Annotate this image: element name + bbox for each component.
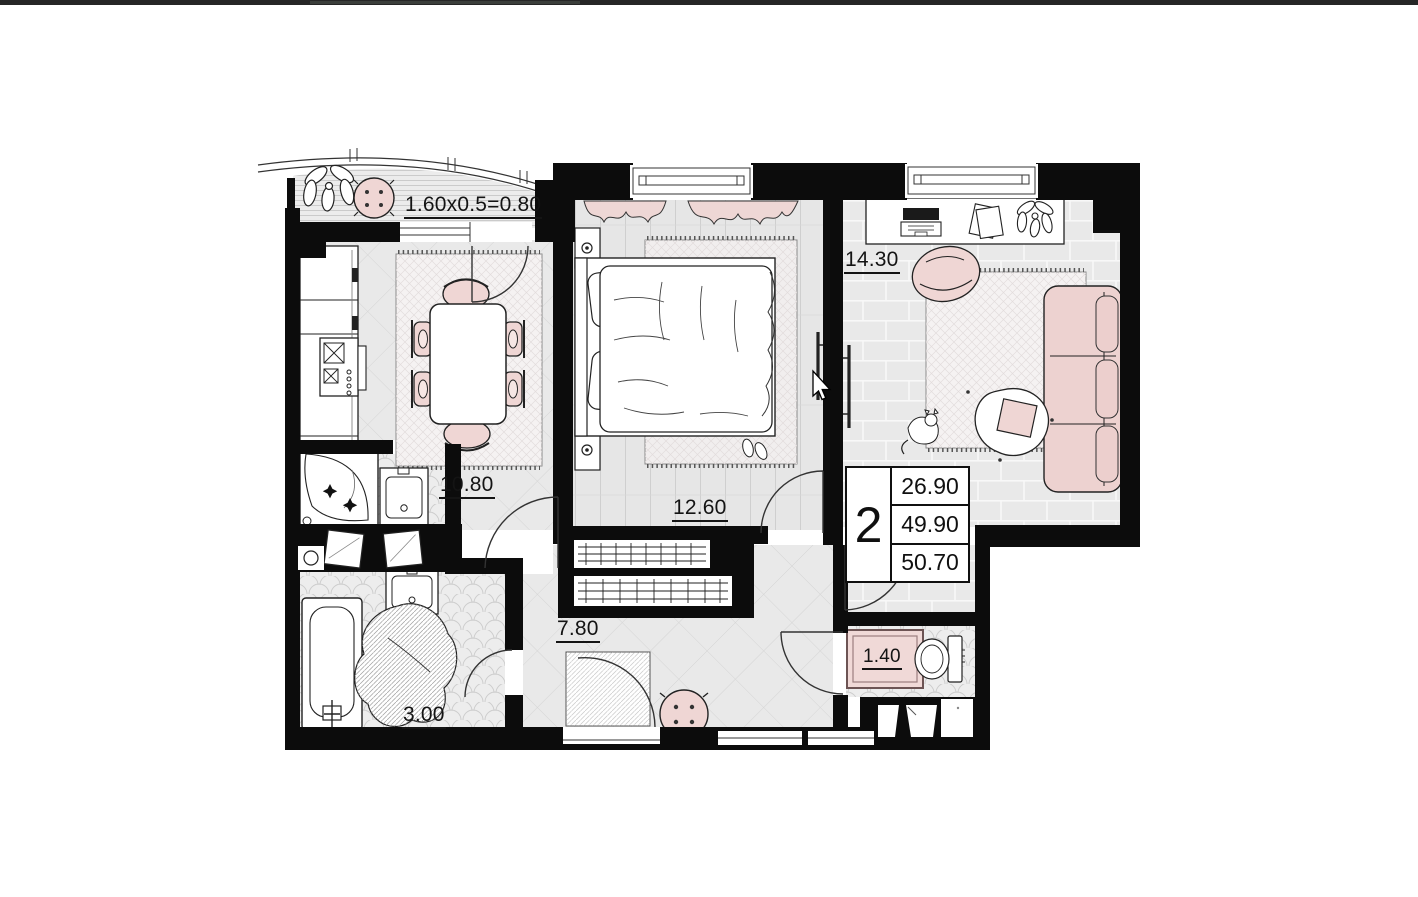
toilet-area-label: 1.40 <box>862 647 902 670</box>
apartment-area-value: 49.90 <box>892 506 968 544</box>
sofa <box>1044 286 1122 492</box>
floor-plan-page: 1.60x0.5=0.80 10.80 12.60 14.30 7.80 3.0… <box>0 0 1418 897</box>
apartment-info-table: 2 26.90 49.90 50.70 <box>845 466 970 583</box>
entrance-mat <box>566 652 650 726</box>
laptop-icon <box>901 208 941 236</box>
total-area-value: 50.70 <box>892 545 968 581</box>
bedroom-area-label: 12.60 <box>672 497 728 522</box>
living-area-value: 26.90 <box>892 468 968 506</box>
bathroom-area-label: 3.00 <box>402 704 446 729</box>
balcony-plant-icon <box>302 162 356 211</box>
papers-icon <box>969 204 1003 239</box>
balcony-pouf <box>354 178 394 218</box>
bottom-window <box>718 731 874 745</box>
hallway-area-label: 7.80 <box>556 618 600 643</box>
living-room-area-label: 14.30 <box>844 249 900 274</box>
bedroom-window <box>630 165 753 198</box>
balcony-dimension-label: 1.60x0.5=0.80 <box>404 194 542 219</box>
area-values-column: 26.90 49.90 50.70 <box>892 468 968 581</box>
toilet-icon <box>915 636 965 682</box>
laundry-sink-icon <box>380 468 428 526</box>
kitchen-area-label: 10.80 <box>439 474 495 499</box>
dining-table <box>430 304 506 424</box>
bed-icon <box>575 258 775 461</box>
room-count-cell: 2 <box>847 468 892 581</box>
stove-icon <box>320 338 366 396</box>
living-window <box>905 164 1038 198</box>
kitchen-balcony-window <box>400 222 532 242</box>
bathtub-icon <box>302 598 362 730</box>
floor-plan-drawing <box>0 0 1418 897</box>
shower-icon <box>300 448 378 526</box>
entrance-opening <box>563 727 660 744</box>
